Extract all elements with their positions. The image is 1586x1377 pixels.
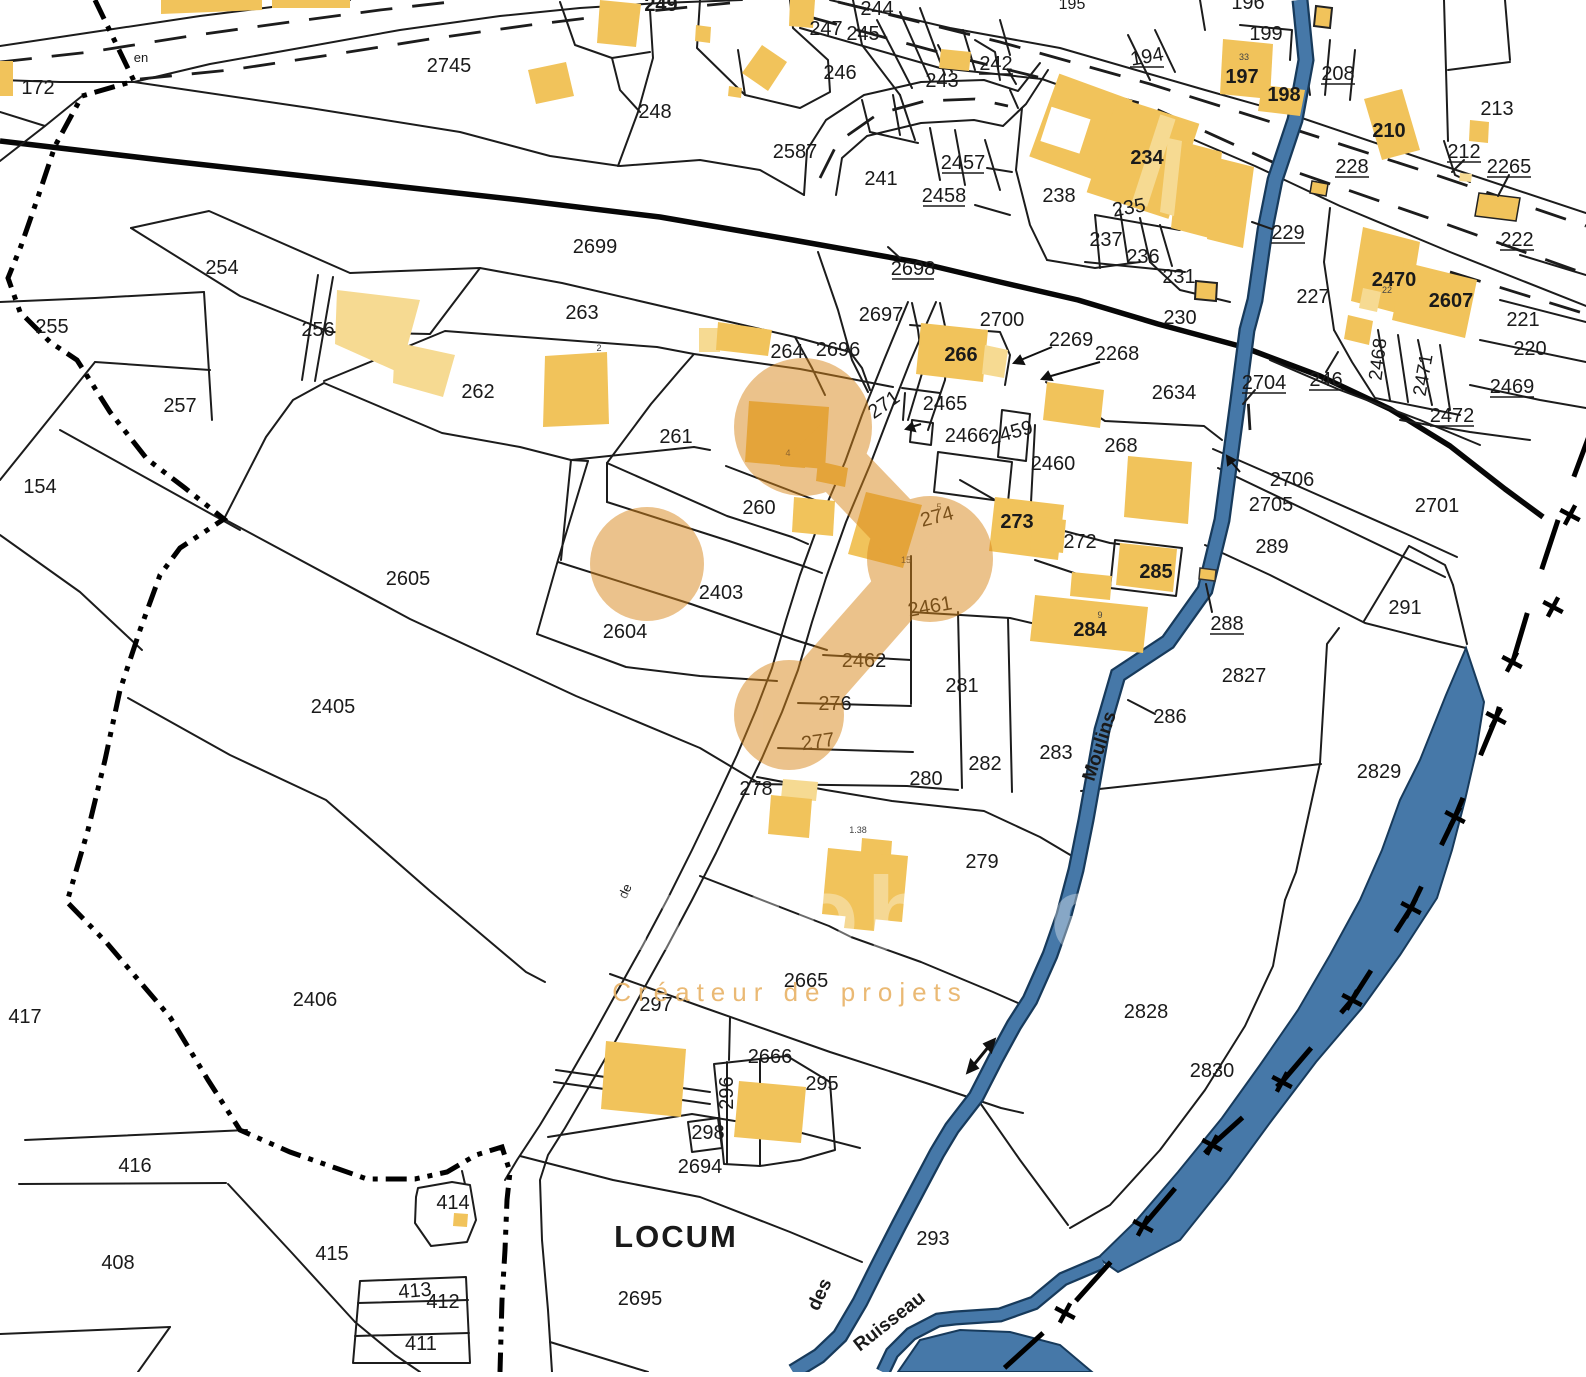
svg-text:2701: 2701 — [1415, 495, 1460, 517]
svg-text:212: 212 — [1447, 141, 1480, 163]
svg-text:22: 22 — [1382, 285, 1392, 295]
svg-text:273: 273 — [1000, 511, 1033, 533]
svg-text:2405: 2405 — [311, 696, 356, 718]
svg-text:172: 172 — [21, 77, 54, 99]
svg-text:2699: 2699 — [573, 236, 618, 258]
svg-text:2706: 2706 — [1270, 469, 1315, 491]
svg-text:221: 221 — [1506, 309, 1539, 331]
svg-text:2466: 2466 — [945, 425, 990, 447]
svg-text:2458: 2458 — [922, 185, 967, 207]
svg-text:en: en — [134, 50, 148, 65]
svg-text:414: 414 — [436, 1192, 469, 1214]
svg-text:236: 236 — [1126, 246, 1159, 268]
svg-text:2704: 2704 — [1242, 372, 1287, 394]
svg-text:2829: 2829 — [1357, 761, 1402, 783]
svg-text:254: 254 — [205, 257, 238, 279]
svg-text:immobilier: immobilier — [555, 856, 1166, 973]
svg-text:2470: 2470 — [1372, 269, 1417, 291]
svg-text:229: 229 — [1271, 222, 1304, 244]
svg-text:412: 412 — [426, 1291, 459, 1313]
svg-text:411: 411 — [405, 1333, 437, 1355]
svg-text:Créateur de projets: Créateur de projets — [612, 977, 968, 1007]
svg-text:2700: 2700 — [980, 309, 1025, 331]
svg-text:227: 227 — [1296, 286, 1329, 308]
svg-text:246: 246 — [1309, 369, 1342, 391]
svg-text:210: 210 — [1372, 120, 1405, 142]
svg-text:195: 195 — [1059, 0, 1086, 13]
svg-text:238: 238 — [1042, 185, 1075, 207]
svg-text:2587: 2587 — [773, 141, 818, 163]
svg-text:260: 260 — [742, 497, 775, 519]
svg-text:2830: 2830 — [1190, 1060, 1235, 1082]
svg-text:256: 256 — [301, 319, 334, 341]
svg-text:196: 196 — [1231, 0, 1264, 14]
svg-text:278: 278 — [739, 778, 772, 800]
svg-text:283: 283 — [1039, 742, 1072, 764]
svg-text:261: 261 — [659, 426, 692, 448]
svg-text:208: 208 — [1321, 63, 1354, 85]
svg-text:272: 272 — [1063, 531, 1096, 553]
svg-text:244: 244 — [860, 0, 893, 20]
svg-text:2828: 2828 — [1124, 1001, 1169, 1023]
svg-text:2705: 2705 — [1249, 494, 1294, 516]
svg-text:263: 263 — [565, 302, 598, 324]
svg-text:241: 241 — [864, 168, 897, 190]
svg-text:2469: 2469 — [1490, 376, 1535, 398]
svg-text:2605: 2605 — [386, 568, 431, 590]
svg-text:257: 257 — [163, 395, 196, 417]
svg-text:2697: 2697 — [859, 304, 904, 326]
svg-text:234: 234 — [1130, 147, 1164, 169]
svg-text:296: 296 — [716, 1076, 738, 1109]
svg-text:LOCUM: LOCUM — [614, 1219, 738, 1254]
svg-text:291: 291 — [1388, 597, 1421, 619]
svg-text:213: 213 — [1480, 98, 1513, 120]
svg-text:298: 298 — [691, 1122, 724, 1144]
svg-text:2457: 2457 — [941, 152, 986, 174]
svg-text:295: 295 — [805, 1073, 838, 1095]
svg-text:293: 293 — [916, 1228, 949, 1250]
svg-text:415: 415 — [315, 1243, 348, 1265]
svg-text:242: 242 — [979, 53, 1012, 75]
svg-text:255: 255 — [35, 316, 68, 338]
svg-text:2604: 2604 — [603, 621, 648, 643]
svg-text:2269: 2269 — [1049, 329, 1094, 351]
svg-text:1.38: 1.38 — [849, 825, 867, 835]
svg-text:2607: 2607 — [1429, 290, 1474, 312]
svg-text:2403: 2403 — [699, 582, 744, 604]
svg-text:2265: 2265 — [1487, 156, 1532, 178]
svg-text:2745: 2745 — [427, 55, 472, 77]
svg-text:2827: 2827 — [1222, 665, 1267, 687]
svg-text:154: 154 — [23, 476, 56, 498]
svg-text:9: 9 — [1097, 610, 1102, 620]
svg-text:2465: 2465 — [923, 393, 968, 415]
svg-text:288: 288 — [1210, 613, 1243, 635]
svg-text:231: 231 — [1162, 266, 1195, 288]
svg-text:2268: 2268 — [1095, 343, 1140, 365]
svg-text:245: 245 — [846, 23, 879, 45]
svg-text:2666: 2666 — [748, 1046, 793, 1068]
svg-text:262: 262 — [461, 381, 494, 403]
svg-text:266: 266 — [944, 344, 977, 366]
svg-text:285: 285 — [1139, 561, 1172, 583]
svg-text:284: 284 — [1073, 619, 1107, 641]
svg-text:230: 230 — [1163, 307, 1196, 329]
svg-text:286: 286 — [1153, 706, 1186, 728]
svg-text:199: 199 — [1249, 23, 1282, 45]
svg-text:247: 247 — [809, 18, 842, 40]
svg-text:282: 282 — [968, 753, 1001, 775]
svg-text:220: 220 — [1513, 338, 1546, 360]
svg-text:222: 222 — [1500, 229, 1533, 251]
svg-text:2: 2 — [596, 343, 601, 353]
svg-text:2698: 2698 — [891, 258, 936, 280]
svg-text:246: 246 — [823, 62, 856, 84]
svg-text:2472: 2472 — [1430, 405, 1475, 427]
svg-text:417: 417 — [8, 1006, 41, 1028]
svg-text:248: 248 — [638, 101, 671, 123]
svg-text:281: 281 — [945, 675, 978, 697]
svg-text:408: 408 — [101, 1252, 134, 1274]
svg-text:280: 280 — [909, 768, 942, 790]
svg-text:2696: 2696 — [816, 339, 861, 361]
svg-text:2695: 2695 — [618, 1288, 663, 1310]
svg-text:2460: 2460 — [1031, 453, 1076, 475]
svg-text:2694: 2694 — [678, 1156, 723, 1178]
svg-text:33: 33 — [1239, 52, 1249, 62]
svg-text:237: 237 — [1089, 229, 1122, 251]
svg-text:2406: 2406 — [293, 989, 338, 1011]
svg-text:198: 198 — [1267, 84, 1300, 106]
svg-text:416: 416 — [118, 1155, 151, 1177]
svg-text:243: 243 — [925, 70, 958, 92]
svg-text:249: 249 — [644, 0, 677, 16]
svg-text:2634: 2634 — [1152, 382, 1197, 404]
svg-text:268: 268 — [1104, 435, 1137, 457]
svg-text:289: 289 — [1255, 536, 1288, 558]
svg-text:228: 228 — [1335, 156, 1368, 178]
svg-text:197: 197 — [1225, 66, 1258, 88]
